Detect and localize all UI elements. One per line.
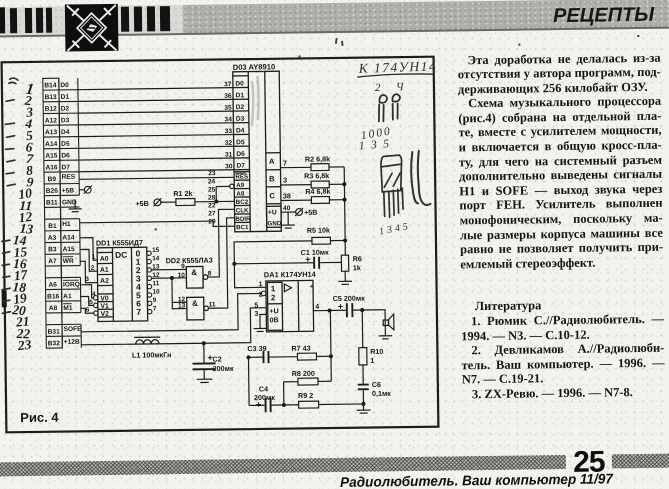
svg-text:24: 24 bbox=[208, 178, 216, 185]
svg-text:+U: +U bbox=[268, 209, 277, 216]
svg-text:0B: 0B bbox=[270, 317, 279, 324]
svg-text:10: 10 bbox=[178, 272, 186, 279]
svg-text:B32: B32 bbox=[48, 340, 61, 347]
svg-text:H1: H1 bbox=[62, 221, 71, 228]
svg-text:A9: A9 bbox=[236, 182, 245, 189]
svg-text:A3: A3 bbox=[48, 235, 57, 242]
svg-text:D0: D0 bbox=[60, 82, 69, 89]
svg-text:+5B: +5B bbox=[135, 199, 149, 208]
svg-text:B14: B14 bbox=[44, 82, 57, 89]
svg-text:1: 1 bbox=[271, 284, 276, 293]
svg-text:M1: M1 bbox=[63, 305, 73, 312]
svg-text:R7 43: R7 43 bbox=[291, 344, 310, 353]
svg-text:A: A bbox=[269, 157, 275, 166]
svg-text:25: 25 bbox=[208, 187, 216, 194]
svg-text:B11: B11 bbox=[46, 199, 58, 206]
svg-text:7: 7 bbox=[153, 305, 157, 312]
svg-text:1k: 1k bbox=[353, 263, 361, 272]
svg-text:R10: R10 bbox=[370, 347, 383, 356]
svg-text:A16: A16 bbox=[45, 164, 58, 171]
svg-text:32: 32 bbox=[225, 140, 233, 147]
svg-text:A2: A2 bbox=[100, 278, 109, 285]
svg-text:15: 15 bbox=[152, 247, 160, 254]
svg-text:+5B: +5B bbox=[304, 208, 318, 217]
svg-text:33: 33 bbox=[225, 128, 233, 135]
svg-text:DD2 К555ЛА3: DD2 К555ЛА3 bbox=[166, 256, 213, 266]
svg-text:R5 10k: R5 10k bbox=[307, 226, 330, 235]
svg-text:35: 35 bbox=[224, 105, 232, 112]
svg-text:B3: B3 bbox=[48, 246, 57, 253]
svg-text:A0: A0 bbox=[100, 256, 109, 263]
svg-text:SOFE: SOFE bbox=[64, 326, 83, 333]
svg-text:A7: A7 bbox=[48, 258, 57, 265]
svg-text:D2: D2 bbox=[61, 105, 70, 112]
svg-text:31: 31 bbox=[225, 152, 233, 159]
svg-text:BDIR: BDIR bbox=[235, 216, 251, 223]
svg-text:37: 37 bbox=[224, 81, 232, 88]
svg-text:13: 13 bbox=[178, 303, 186, 310]
svg-text:30: 30 bbox=[225, 163, 233, 170]
svg-text:29: 29 bbox=[208, 218, 216, 225]
svg-text:+12B: +12B bbox=[64, 339, 80, 346]
svg-text:RES: RES bbox=[62, 174, 76, 181]
svg-text:R9 2: R9 2 bbox=[298, 391, 313, 400]
svg-text:1345: 1345 bbox=[378, 221, 411, 238]
svg-text:36: 36 bbox=[224, 93, 232, 100]
svg-text:D6: D6 bbox=[61, 152, 70, 159]
svg-text:R2 6,8k: R2 6,8k bbox=[305, 154, 330, 163]
svg-text:3: 3 bbox=[254, 311, 258, 318]
svg-text:DC: DC bbox=[115, 250, 127, 260]
svg-text:0,1мк: 0,1мк bbox=[372, 389, 391, 398]
svg-text:B1: B1 bbox=[48, 223, 57, 230]
svg-text:A8: A8 bbox=[49, 305, 58, 312]
svg-text:8: 8 bbox=[208, 270, 212, 277]
svg-text:V1: V1 bbox=[100, 303, 109, 310]
svg-text:D3: D3 bbox=[236, 116, 245, 123]
svg-text:V0: V0 bbox=[100, 295, 109, 302]
svg-text:10: 10 bbox=[153, 289, 161, 296]
svg-text:14: 14 bbox=[152, 255, 160, 262]
svg-text:38: 38 bbox=[283, 191, 291, 200]
svg-text:A1: A1 bbox=[100, 267, 109, 274]
svg-text:9: 9 bbox=[153, 297, 157, 304]
svg-text:Рис. 4: Рис. 4 bbox=[20, 410, 59, 426]
svg-text:34: 34 bbox=[224, 116, 232, 123]
svg-text:A15: A15 bbox=[45, 153, 58, 160]
svg-text:23: 23 bbox=[16, 337, 32, 353]
svg-text:11: 11 bbox=[152, 280, 159, 287]
svg-text:WR: WR bbox=[63, 258, 74, 265]
svg-text:23: 23 bbox=[208, 170, 216, 177]
svg-text:CLK: CLK bbox=[236, 207, 249, 214]
svg-text:C2: C2 bbox=[212, 354, 221, 363]
svg-text:L1 100мкГн: L1 100мкГн bbox=[132, 350, 172, 360]
svg-text:B9: B9 bbox=[48, 176, 57, 183]
svg-text:C6: C6 bbox=[372, 380, 381, 389]
svg-text:D5: D5 bbox=[236, 139, 245, 146]
svg-text:3: 3 bbox=[283, 176, 287, 185]
svg-text:2: 2 bbox=[375, 82, 381, 94]
svg-text:5: 5 bbox=[89, 299, 93, 306]
svg-text:7: 7 bbox=[136, 307, 141, 317]
svg-text:B16: B16 bbox=[47, 293, 60, 300]
svg-text:DA1 К174УН14: DA1 К174УН14 bbox=[264, 270, 317, 280]
svg-text:A14: A14 bbox=[62, 234, 75, 241]
svg-text:D4: D4 bbox=[236, 127, 245, 134]
svg-text:1: 1 bbox=[370, 356, 374, 365]
svg-text:A12: A12 bbox=[45, 117, 58, 124]
svg-text:&: & bbox=[192, 299, 198, 308]
svg-text:D7: D7 bbox=[61, 164, 70, 171]
svg-text:A8: A8 bbox=[236, 190, 245, 197]
svg-text:D3: D3 bbox=[61, 117, 70, 124]
svg-text:200мк: 200мк bbox=[213, 364, 234, 373]
svg-text:R8 200: R8 200 bbox=[292, 369, 315, 378]
svg-text:A13: A13 bbox=[45, 129, 58, 136]
svg-text:B26: B26 bbox=[46, 188, 59, 195]
svg-text:4: 4 bbox=[315, 304, 319, 311]
svg-text:2: 2 bbox=[271, 293, 276, 302]
svg-text:R1 2k: R1 2k bbox=[173, 189, 192, 198]
svg-text:К 174УН14: К 174УН14 bbox=[357, 58, 437, 75]
svg-text:Ч: Ч bbox=[396, 81, 405, 93]
svg-text:D5: D5 bbox=[61, 141, 70, 148]
svg-text:+5B: +5B bbox=[62, 188, 75, 195]
svg-text:C3 39: C3 39 bbox=[247, 344, 266, 353]
svg-text:5: 5 bbox=[254, 303, 258, 310]
svg-text:B13: B13 bbox=[45, 94, 58, 101]
svg-text:D7: D7 bbox=[236, 163, 245, 170]
svg-text:A15: A15 bbox=[62, 246, 75, 253]
svg-text:IORQ: IORQ bbox=[63, 281, 80, 288]
svg-text:C1 10мк: C1 10мк bbox=[301, 248, 330, 257]
svg-text:9: 9 bbox=[181, 263, 185, 270]
svg-text:B31: B31 bbox=[48, 329, 61, 336]
svg-text:B12: B12 bbox=[45, 106, 58, 113]
svg-text:R4 6,8k: R4 6,8k bbox=[305, 187, 330, 196]
svg-text:BC1: BC1 bbox=[236, 224, 249, 231]
svg-text:RES: RES bbox=[235, 173, 248, 180]
svg-text:V2: V2 bbox=[101, 311, 110, 318]
svg-text:11: 11 bbox=[209, 301, 216, 308]
svg-text:A1: A1 bbox=[63, 293, 72, 300]
svg-text:1: 1 bbox=[92, 254, 96, 261]
svg-text:C5 200мк: C5 200мк bbox=[333, 294, 366, 303]
svg-text:1: 1 bbox=[259, 281, 263, 288]
svg-text:D1: D1 bbox=[61, 94, 70, 101]
svg-text:40: 40 bbox=[283, 205, 291, 212]
svg-text:&: & bbox=[191, 268, 197, 277]
svg-text:D6: D6 bbox=[236, 151, 245, 158]
svg-text:D03 AY8910: D03 AY8910 bbox=[233, 62, 276, 72]
svg-text:+U: +U bbox=[269, 308, 278, 315]
svg-text:GND: GND bbox=[267, 220, 281, 227]
svg-text:R6: R6 bbox=[353, 254, 362, 263]
svg-text:D1: D1 bbox=[235, 92, 244, 99]
svg-text:6: 6 bbox=[86, 307, 90, 314]
svg-text:D0: D0 bbox=[235, 80, 244, 87]
svg-text:B: B bbox=[269, 174, 275, 183]
svg-text:D4: D4 bbox=[61, 129, 70, 136]
svg-text:27: 27 bbox=[208, 210, 216, 217]
svg-text:3: 3 bbox=[85, 276, 89, 283]
svg-text:7: 7 bbox=[283, 159, 287, 168]
svg-text:+: + bbox=[256, 399, 261, 409]
svg-text:R3 6,8k: R3 6,8k bbox=[304, 171, 329, 180]
svg-text:A14: A14 bbox=[45, 141, 58, 148]
svg-text:BC2: BC2 bbox=[236, 199, 249, 206]
svg-text:DD1 К555ИД7: DD1 К555ИД7 bbox=[96, 238, 143, 248]
svg-text:D2: D2 bbox=[236, 104, 245, 111]
svg-text:135: 135 bbox=[358, 138, 396, 153]
svg-text:A6: A6 bbox=[48, 282, 57, 289]
svg-text:2: 2 bbox=[91, 265, 95, 272]
svg-text:22: 22 bbox=[208, 202, 216, 209]
svg-text:C: C bbox=[269, 191, 275, 200]
